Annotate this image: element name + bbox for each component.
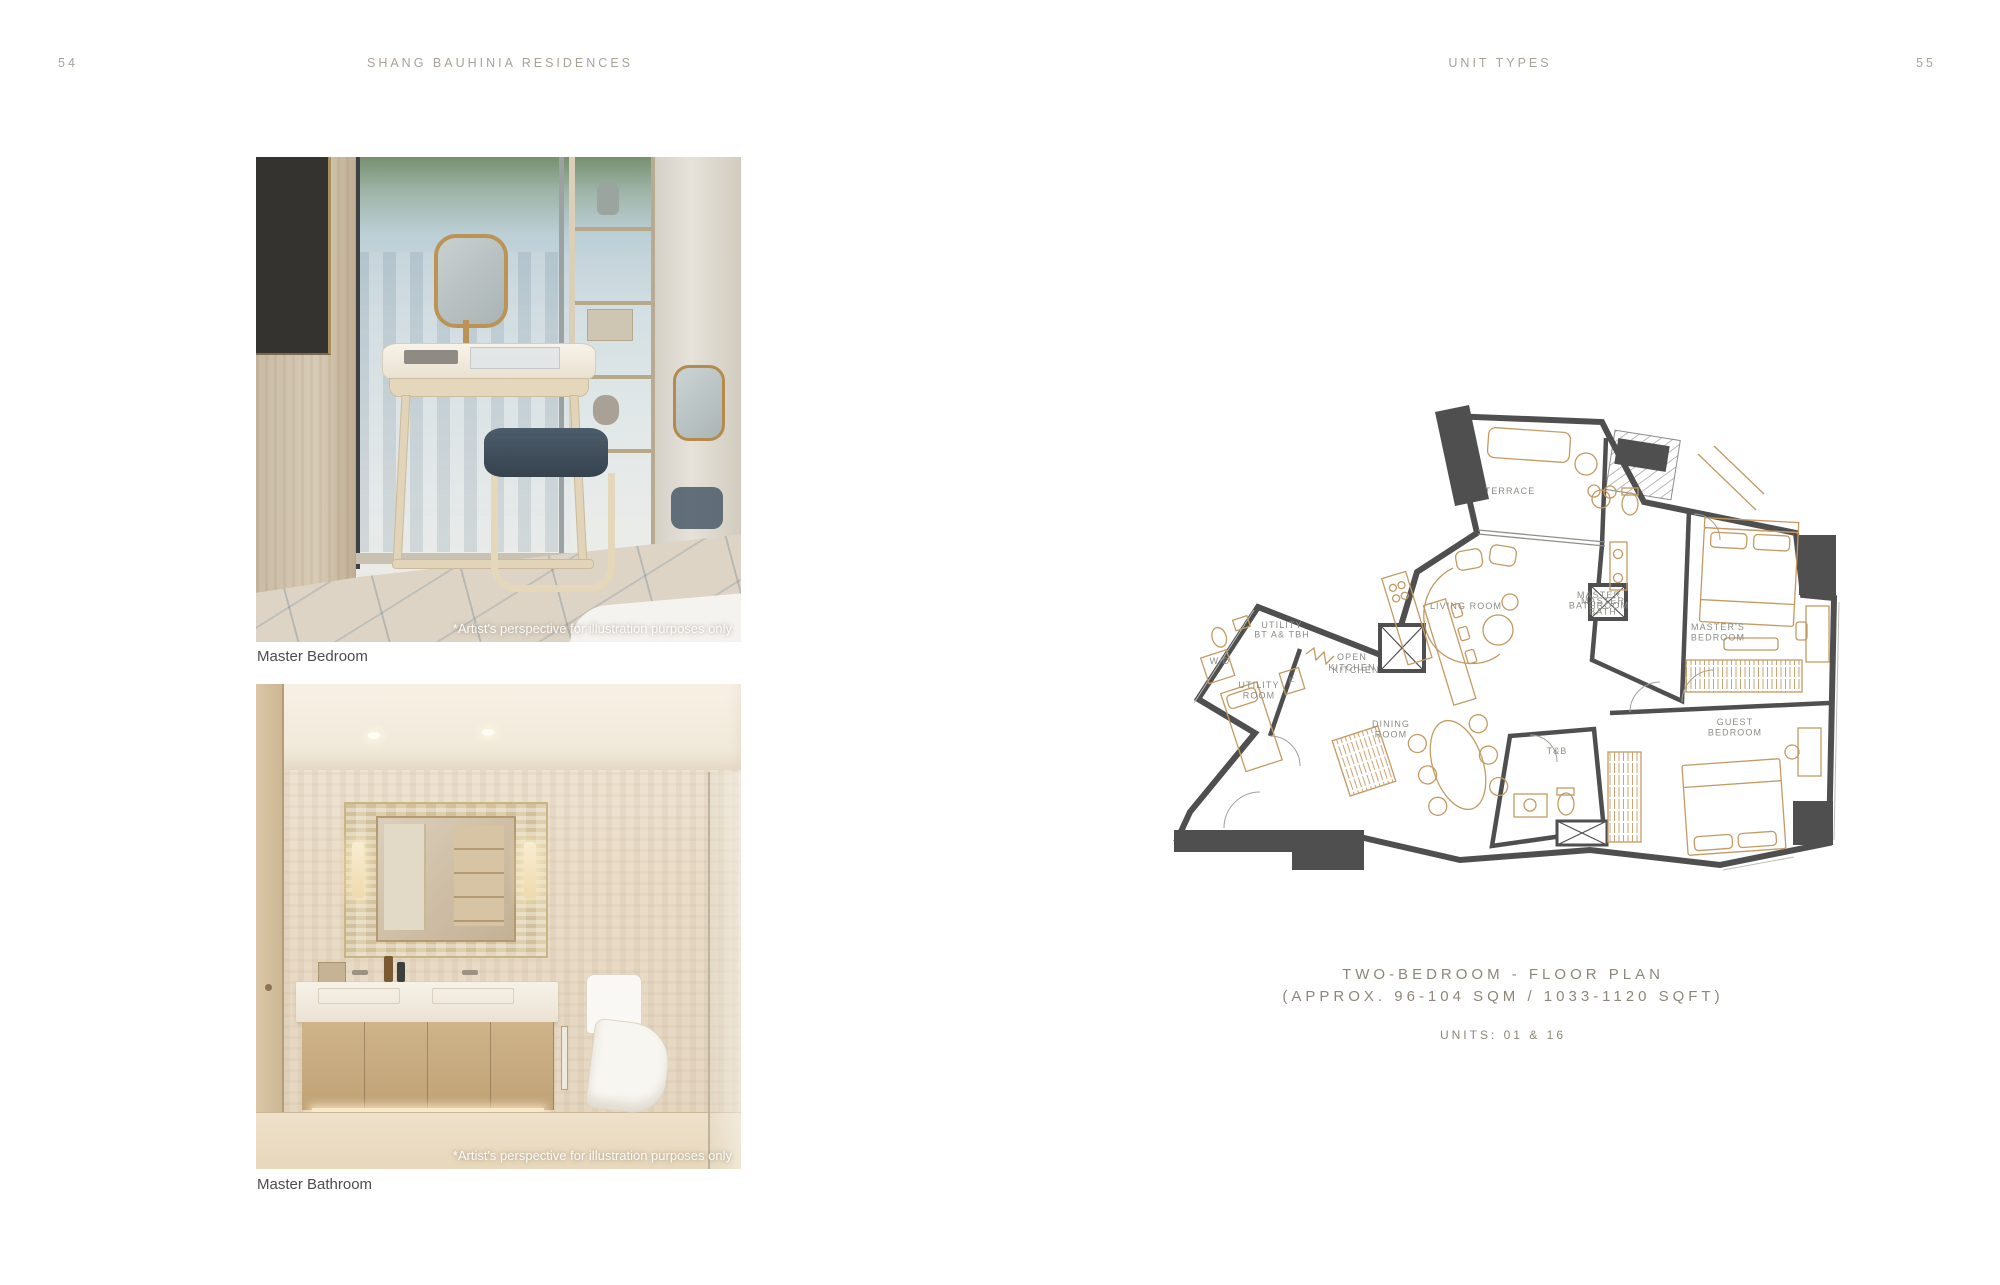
tv-screen [256,157,331,355]
desk-drawer [389,378,589,397]
vase [597,181,619,215]
open-shelf [569,157,663,469]
mirror-reflection [384,824,426,930]
shower-glass [708,772,741,1169]
stool-seat [484,428,608,477]
room-label: DININGROOM [1372,719,1410,740]
photo-disclaimer: *Artist's perspective for illustration p… [453,1148,732,1163]
floor-plan: TERRACELIVING ROOMMASTERBATHROOMMASTERBA… [1158,402,1848,880]
towel-rail [561,1026,568,1090]
recessed-light [482,729,494,736]
stool-frame [491,473,615,592]
desk-tray [470,347,560,369]
floor-plan-title-line1: TWO-BEDROOM - FLOOR PLAN [1158,966,1848,983]
amenity-tray [318,962,346,984]
faucet [352,970,368,975]
hatched-area [1606,430,1681,500]
running-head-left: SHANG BAUHINIA RESIDENCES [0,56,1000,70]
vase [593,395,619,425]
floor-plan-drawing: TERRACELIVING ROOMMASTERBATHROOMMASTERBA… [1158,402,1848,880]
sink-basin [432,988,514,1004]
door-edge [256,684,284,1169]
recessed-light [368,732,380,739]
soap-bottle [397,962,405,982]
photo-caption: Master Bedroom [257,648,368,665]
books [587,309,633,341]
wall-sconce [524,842,536,898]
vanity-mirror [434,234,508,328]
photo-caption: Master Bathroom [257,1176,372,1193]
stool-reflection [671,487,723,529]
room-label: KITCHEN [1332,665,1379,675]
photo-disclaimer: *Artist's perspective for illustration p… [453,621,732,636]
room-label: UTILITYROOM [1238,680,1279,701]
master-bedroom-photo: *Artist's perspective for illustration p… [256,157,741,642]
floor-plan-units: UNITS: 01 & 16 [1158,1028,1848,1042]
room-label: LIVING ROOM [1430,601,1502,611]
room-label: T&B [1547,746,1568,756]
room-label: MASTER'SBEDROOM [1691,622,1745,643]
mirror-reflection [673,365,725,441]
vanity-cabinet [302,1022,554,1110]
page-number-right: 55 [1916,56,1936,70]
running-head-right: UNIT TYPES [1000,56,2000,70]
ceiling [256,684,741,770]
desk-book [404,350,458,364]
sink-basin [318,988,400,1004]
room-label: F [1289,676,1296,686]
door-handle [265,984,272,991]
master-bathroom-photo: *Artist's perspective for illustration p… [256,684,741,1169]
mirror-reflection-shelf [454,826,504,926]
floor-plan-title-line2: (APPROX. 96-104 SQM / 1033-1120 SQFT) [1158,988,1848,1005]
room-label: UTILITYBT A& TBH [1254,620,1310,640]
brochure-spread: 54 SHANG BAUHINIA RESIDENCES UNIT TYPES … [0,0,2000,1285]
room-label: W/D [1210,656,1231,666]
faucet [462,970,478,975]
room-label: TERRACE [1485,486,1536,496]
wall-sconce [352,842,364,898]
diffuser-bottle [384,956,393,982]
